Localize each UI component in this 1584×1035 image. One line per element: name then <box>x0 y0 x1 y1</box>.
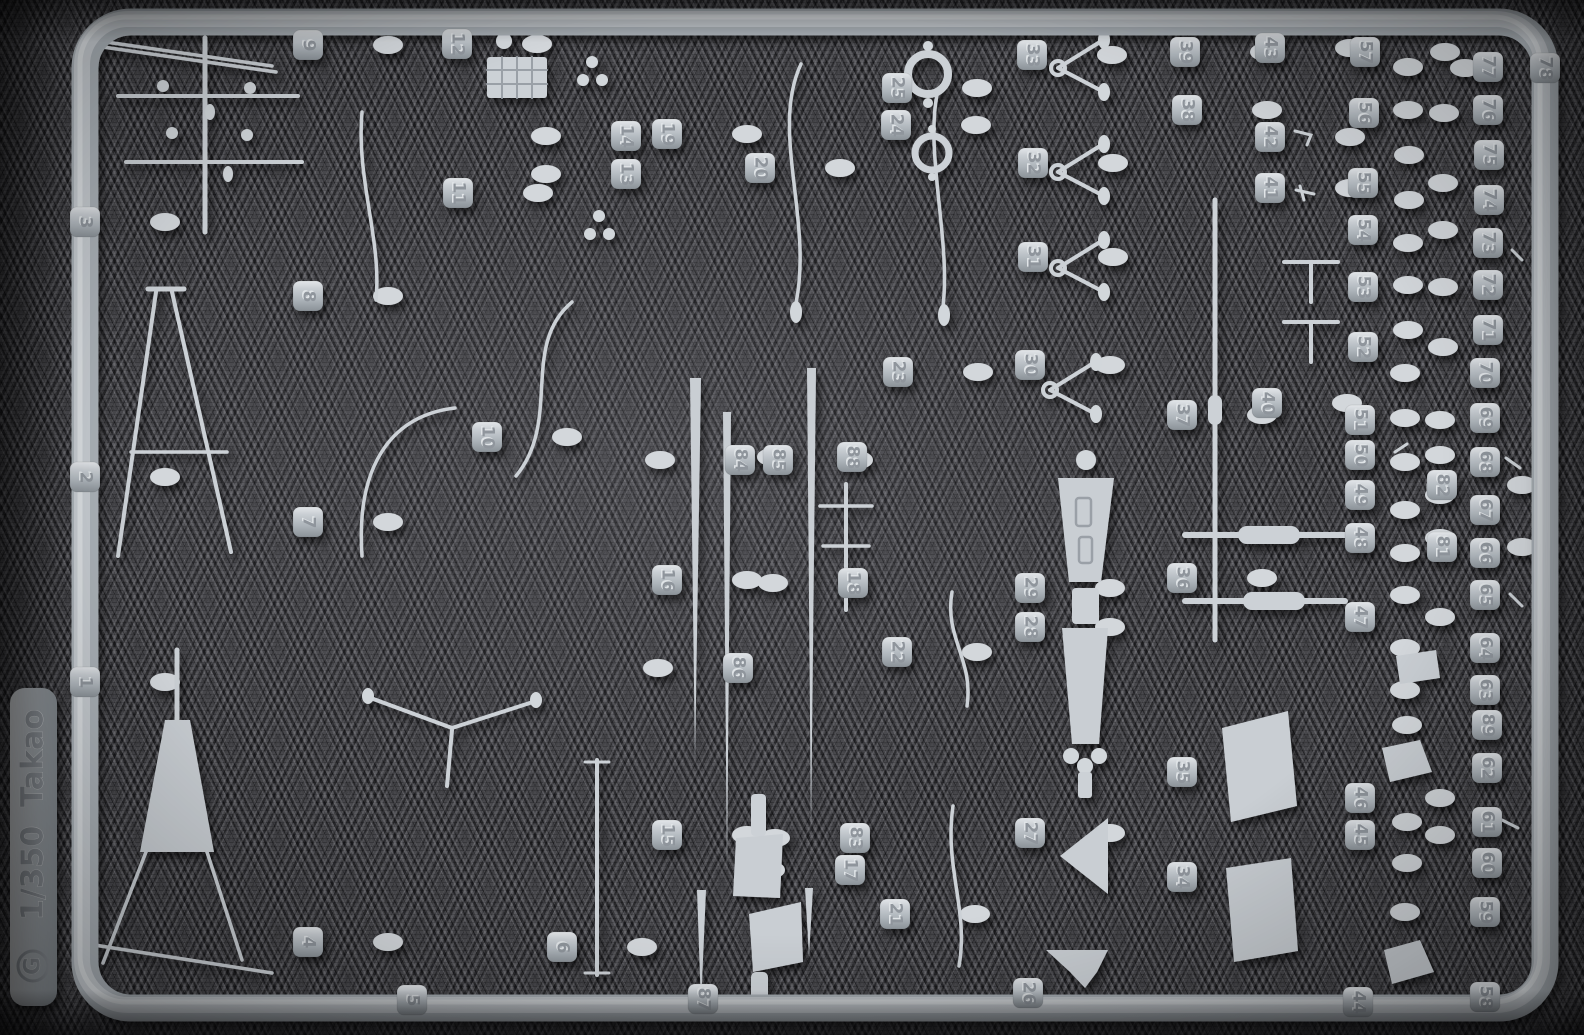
propeller <box>603 228 615 240</box>
funnel-neck <box>751 794 766 836</box>
part-number: 89 <box>1478 714 1498 738</box>
capsule-part <box>963 363 993 381</box>
part-number: 15 <box>658 824 678 848</box>
part-number-tab: 2323 <box>883 357 913 387</box>
part-number: 36 <box>1173 567 1193 591</box>
part-number: 78 <box>1536 57 1556 81</box>
signal-lamp <box>166 127 178 139</box>
part-number-tab: 8686 <box>723 653 753 683</box>
part-number: 52 <box>1354 336 1374 360</box>
part-number-tab: 8787 <box>688 984 718 1014</box>
crane-tower <box>1062 628 1108 744</box>
part-number: 72 <box>1479 274 1499 298</box>
capsule-part <box>1394 191 1424 209</box>
ring-knob <box>928 125 936 133</box>
funnel-box <box>749 902 803 972</box>
propeller <box>593 210 605 222</box>
part-number: 70 <box>1476 362 1496 386</box>
part-number-tab: 1212 <box>442 29 472 59</box>
part-number-tab: 3535 <box>1167 757 1197 787</box>
part-number-tab: 1818 <box>838 568 868 598</box>
whip-bulb <box>938 304 950 326</box>
part-number: 43 <box>1261 37 1281 61</box>
part-number-tab: 88 <box>293 281 323 311</box>
thin-rod <box>92 40 272 66</box>
part-number: 35 <box>1173 761 1193 785</box>
part-number: 6 <box>553 942 573 954</box>
part-number-tab: 4242 <box>1255 122 1285 152</box>
capsule-part <box>1428 338 1458 356</box>
part-number: 49 <box>1351 484 1371 508</box>
part-number: 71 <box>1479 319 1499 343</box>
part-number: 82 <box>1433 474 1453 498</box>
part-number: 84 <box>731 449 751 473</box>
propeller <box>596 74 608 86</box>
part-number: 55 <box>1354 172 1374 196</box>
capsule-part <box>552 428 582 446</box>
capsule-part <box>1393 58 1423 76</box>
crane-stem <box>1078 772 1092 798</box>
capsule-part <box>1390 586 1420 604</box>
funnel-box <box>733 834 783 898</box>
scale-text: 1/350 <box>16 826 51 920</box>
part-number-tab: 1717 <box>835 855 865 885</box>
part-number-tab: 7474 <box>1474 185 1504 215</box>
part-number: 66 <box>1476 542 1496 566</box>
hook-part <box>1506 458 1520 468</box>
part-number-tab: 8989 <box>1472 710 1502 740</box>
capsule-part <box>758 574 788 592</box>
part-number: 50 <box>1351 444 1371 468</box>
part-number-tab: 7171 <box>1473 315 1503 345</box>
part-number: 12 <box>448 33 468 57</box>
capsule-part <box>1390 409 1420 427</box>
part-number: 53 <box>1354 276 1374 300</box>
part-number-tab: 5656 <box>1349 98 1379 128</box>
part-number: 38 <box>1178 99 1198 123</box>
barrel-sleeve <box>1243 592 1305 610</box>
part-number-tab: 2828 <box>1015 612 1045 642</box>
barrel-sleeve <box>1238 526 1300 544</box>
part-number: 39 <box>1176 41 1196 65</box>
crane-foot <box>1077 758 1093 774</box>
part-number: 27 <box>1021 822 1041 846</box>
part-number-tab: 2020 <box>745 153 775 183</box>
t-part <box>1284 322 1338 362</box>
part-number-tab: 6363 <box>1470 675 1500 705</box>
part-number-tab: 3636 <box>1167 563 1197 593</box>
part-number-tab: 7070 <box>1470 358 1500 388</box>
part-number-tab: 3434 <box>1167 862 1197 892</box>
part-number-tab: 4949 <box>1345 480 1375 510</box>
capsule-part <box>373 513 403 531</box>
capsule-part <box>1392 716 1422 734</box>
part-number: 31 <box>1024 246 1044 270</box>
part-number: 73 <box>1479 232 1499 256</box>
part-number-tab: 5757 <box>1350 37 1380 67</box>
part-number: 2 <box>76 472 96 484</box>
sprue-graphic: G 1/350 Takao 33221199887744121211111010… <box>0 0 1584 1035</box>
part-number: 17 <box>841 859 861 883</box>
part-number: 10 <box>478 426 498 450</box>
part-number: 46 <box>1351 787 1371 811</box>
capsule-part <box>1392 813 1422 831</box>
capsule-part <box>1390 681 1420 699</box>
davit-bob <box>1098 187 1110 205</box>
part-number: 7 <box>299 517 319 529</box>
part-number: 85 <box>769 449 789 473</box>
capsule-part <box>1393 276 1423 294</box>
propeller <box>586 56 598 68</box>
part-number-tab: 7575 <box>1474 140 1504 170</box>
part-number-tab: 4747 <box>1345 602 1375 632</box>
part-number-tab: 4040 <box>1252 388 1282 418</box>
part-number: 64 <box>1476 637 1496 661</box>
whip-bulb <box>790 301 802 323</box>
part-number: 60 <box>1478 852 1498 876</box>
capsule-part <box>1393 101 1423 119</box>
part-number-tab: 1111 <box>443 178 473 208</box>
capsule-part <box>1392 854 1422 872</box>
part-number-tab: 6767 <box>1470 495 1500 525</box>
part-number: 34 <box>1173 866 1193 890</box>
part-number-tab: 8585 <box>763 445 793 475</box>
part-number: 65 <box>1476 584 1496 608</box>
capsule-part <box>627 938 657 956</box>
part-number: 13 <box>617 163 637 187</box>
part-number: 51 <box>1351 409 1371 433</box>
capsule-part <box>523 184 553 202</box>
part-number-tab: 6969 <box>1470 403 1500 433</box>
part-number: 23 <box>889 361 909 385</box>
part-number: 18 <box>844 572 864 596</box>
signal-lamp <box>241 129 253 141</box>
part-number-tab: 66 <box>547 932 577 962</box>
part-number-tab: 11 <box>70 667 100 697</box>
part-number: 8 <box>299 291 319 303</box>
part-number-tab: 6262 <box>1472 753 1502 783</box>
part-number-tab: 33 <box>70 207 100 237</box>
part-number: 62 <box>1478 757 1498 781</box>
part-number: 56 <box>1355 102 1375 126</box>
crane-foot <box>1091 748 1107 764</box>
part-number-tab: 6666 <box>1470 538 1500 568</box>
ring-knob <box>923 41 933 51</box>
aframe-leg <box>118 292 156 556</box>
pylon-plate <box>140 720 214 852</box>
part-number: 54 <box>1354 219 1374 243</box>
part-number-tab: 2424 <box>881 110 911 140</box>
ring-knob <box>928 173 936 181</box>
part-number-tab: 5555 <box>1348 168 1378 198</box>
part-number-tab: 3737 <box>1167 400 1197 430</box>
mast-spike <box>690 378 701 762</box>
part-number: 81 <box>1433 536 1453 560</box>
part-number-tab: 5858 <box>1470 982 1500 1012</box>
capsule-part <box>825 159 855 177</box>
part-number-tab: 99 <box>293 30 323 60</box>
part-number-tab: 6565 <box>1470 580 1500 610</box>
part-number-tab: 3333 <box>1017 40 1047 70</box>
capsule-part <box>1390 453 1420 471</box>
part-number-tab: 6868 <box>1470 447 1500 477</box>
part-number: 41 <box>1261 177 1281 201</box>
part-number: 19 <box>658 123 678 147</box>
part-number: 30 <box>1021 354 1041 378</box>
part-number-tab: 3131 <box>1018 242 1048 272</box>
part-number: 28 <box>1021 616 1041 640</box>
whip-antenna <box>951 806 961 966</box>
box-part <box>1396 650 1440 684</box>
part-number-tab: 7373 <box>1473 228 1503 258</box>
part-number: 24 <box>887 114 907 138</box>
part-number: 76 <box>1479 99 1499 123</box>
part-number: 69 <box>1476 407 1496 431</box>
part-number: 5 <box>403 995 423 1007</box>
part-number: 20 <box>751 157 771 181</box>
signal-lamp <box>244 82 256 94</box>
part-number: 67 <box>1476 499 1496 523</box>
part-number: 26 <box>1019 982 1039 1006</box>
part-number-tab: 8181 <box>1427 532 1457 562</box>
capsule-part <box>373 36 403 54</box>
part-number-tab: 3232 <box>1018 148 1048 178</box>
capsule-part <box>1390 501 1420 519</box>
part-number: 3 <box>76 217 96 229</box>
propeller <box>577 74 589 86</box>
part-number: 4 <box>299 937 319 949</box>
part-number-tab: 44 <box>293 927 323 957</box>
crane-foot <box>1063 748 1079 764</box>
part-number: 86 <box>729 657 749 681</box>
spreader-bulb <box>530 692 542 708</box>
part-number-tab: 5252 <box>1348 332 1378 362</box>
capsule-part <box>1390 364 1420 382</box>
part-number-tab: 5353 <box>1348 272 1378 302</box>
part-number-tab: 2626 <box>1013 978 1043 1008</box>
box-part <box>1382 740 1432 782</box>
part-number-tab: 4646 <box>1345 783 1375 813</box>
capsule-part <box>150 213 180 231</box>
capsule-part <box>961 116 991 134</box>
part-number-tab: 1616 <box>652 565 682 595</box>
thin-rod <box>88 944 272 973</box>
capsule-part <box>522 35 552 53</box>
part-number: 75 <box>1480 144 1500 168</box>
part-number-tab: 5454 <box>1348 215 1378 245</box>
capsule-part <box>1430 43 1460 61</box>
part-number-tab: 2929 <box>1015 573 1045 603</box>
part-number: 48 <box>1351 527 1371 551</box>
part-number: 87 <box>694 988 714 1012</box>
part-number-tab: 7777 <box>1473 52 1503 82</box>
sprue: G 1/350 Takao 33221199887744121211111010… <box>10 17 1560 1018</box>
part-number: 25 <box>888 77 908 101</box>
capsule-part <box>531 127 561 145</box>
capsule-part <box>1393 234 1423 252</box>
part-number: 14 <box>617 125 637 149</box>
capsule-part <box>1394 146 1424 164</box>
bracket-part <box>1046 950 1108 988</box>
funnel-cap-knob <box>1076 450 1096 470</box>
gate-letter: G <box>21 957 46 975</box>
propeller <box>584 228 596 240</box>
lamp-drop <box>205 104 215 120</box>
part-number: 57 <box>1356 41 1376 65</box>
t-part <box>1284 262 1338 302</box>
part-number: 45 <box>1351 824 1371 848</box>
capsule-part <box>962 79 992 97</box>
capsule-part <box>1097 46 1127 64</box>
part-number-tab: 1919 <box>652 119 682 149</box>
part-number-tab: 2222 <box>882 637 912 667</box>
part-number: 74 <box>1480 189 1500 213</box>
part-number-tab: 8282 <box>1427 470 1457 500</box>
part-number-tab: 8383 <box>840 823 870 853</box>
platform-plate <box>1222 711 1297 822</box>
aframe-leg <box>172 292 231 552</box>
part-number: 61 <box>1478 811 1498 835</box>
davit-bob <box>1098 283 1110 301</box>
capsule-part <box>1252 101 1282 119</box>
part-number-tab: 8888 <box>837 442 867 472</box>
part-number-tab: 4444 <box>1343 987 1373 1017</box>
whip-antenna <box>789 64 801 303</box>
capsule-part <box>1098 248 1128 266</box>
funnel-cap <box>1058 478 1114 582</box>
davit-bob <box>1090 353 1102 371</box>
part-number: 77 <box>1479 56 1499 80</box>
part-number-tab: 7676 <box>1473 95 1503 125</box>
part-number: 1 <box>76 677 96 689</box>
box-part <box>1384 940 1434 984</box>
part-number: 42 <box>1261 126 1281 150</box>
capsule-part <box>373 933 403 951</box>
part-number-tab: 7878 <box>1530 53 1560 83</box>
capsule-part <box>1425 789 1455 807</box>
capsule-part <box>1335 128 1365 146</box>
part-number: 33 <box>1023 44 1043 68</box>
sprue-id-tab: G 1/350 Takao <box>10 688 57 1006</box>
capsule-part <box>1393 321 1423 339</box>
mast-spike <box>805 888 813 956</box>
davit-bob <box>1090 405 1102 423</box>
part-number-tab: 7272 <box>1473 270 1503 300</box>
ring-part <box>915 136 949 170</box>
whip-antenna <box>361 408 455 556</box>
sprue-photo: G 1/350 Takao 33221199887744121211111010… <box>0 0 1584 1035</box>
part-number-tab: 2727 <box>1015 818 1045 848</box>
signal-lamp <box>157 80 169 92</box>
capsule-part <box>732 125 762 143</box>
rod-collar <box>1208 395 1222 425</box>
lamp-drop <box>223 166 233 182</box>
capsule-part <box>732 571 762 589</box>
part-number: 47 <box>1351 606 1371 630</box>
part-number: 11 <box>449 182 469 206</box>
part-number-tab: 1414 <box>611 121 641 151</box>
part-number: 63 <box>1476 679 1496 703</box>
part-number: 59 <box>1476 901 1496 925</box>
davit-bob <box>1098 231 1110 249</box>
part-number-tab: 1010 <box>472 422 502 452</box>
part-number-tab: 2525 <box>882 73 912 103</box>
capsule-part <box>1247 569 1277 587</box>
capsule-part <box>1425 608 1455 626</box>
part-number: 29 <box>1021 577 1041 601</box>
part-number-tab: 3939 <box>1170 37 1200 67</box>
part-number: 37 <box>1173 404 1193 428</box>
part-number-tab: 6464 <box>1470 633 1500 663</box>
part-number-tab: 5050 <box>1345 440 1375 470</box>
part-number-tab: 77 <box>293 507 323 537</box>
ring-knob <box>923 98 933 108</box>
capsule-part <box>531 165 561 183</box>
whip-antenna <box>516 302 572 476</box>
part-number-tab: 4545 <box>1345 820 1375 850</box>
spreader-bulb <box>362 688 374 704</box>
capsule-part <box>645 451 675 469</box>
part-number: 22 <box>888 641 908 665</box>
part-number: 21 <box>886 903 906 927</box>
part-number: 44 <box>1349 991 1369 1015</box>
part-number-tab: 5151 <box>1345 405 1375 435</box>
kit-name-text: Takao <box>16 709 51 807</box>
platform-plate <box>1226 858 1298 962</box>
capsule-part <box>643 659 673 677</box>
capsule-part <box>1390 903 1420 921</box>
capsule-part <box>962 643 992 661</box>
part-number: 16 <box>658 569 678 593</box>
capsule-part <box>1098 154 1128 172</box>
capsule-part <box>1428 174 1458 192</box>
hook-part <box>1502 820 1518 828</box>
pylon-leg <box>207 852 242 960</box>
part-number-tab: 55 <box>397 985 427 1015</box>
part-number-tab: 22 <box>70 462 100 492</box>
part-number-tab: 6060 <box>1472 848 1502 878</box>
part-number-tab: 4343 <box>1255 33 1285 63</box>
part-number: 68 <box>1476 451 1496 475</box>
davit-bob <box>1098 135 1110 153</box>
part-number: 58 <box>1476 986 1496 1010</box>
yardarm-diagonal <box>96 46 276 72</box>
part-number: 32 <box>1024 152 1044 176</box>
part-number: 83 <box>846 827 866 851</box>
whip-antenna <box>361 112 377 300</box>
part-number: 88 <box>843 446 863 470</box>
hook-part <box>1510 594 1522 606</box>
part-number-tab: 5959 <box>1470 897 1500 927</box>
part-number: 9 <box>299 40 319 52</box>
capsule-part <box>150 468 180 486</box>
part-number-tab: 1515 <box>652 820 682 850</box>
crane-base <box>1072 588 1099 624</box>
part-number-tab: 8484 <box>725 445 755 475</box>
part-number-tab: 1313 <box>611 159 641 189</box>
part-number: 40 <box>1258 392 1278 416</box>
hook-part <box>1512 250 1522 260</box>
part-number-tab: 4848 <box>1345 523 1375 553</box>
capsule-part <box>1390 544 1420 562</box>
davit-bob <box>1098 83 1110 101</box>
part-number-tab: 2121 <box>880 899 910 929</box>
part-number-tab: 3838 <box>1172 95 1202 125</box>
capsule-part <box>960 905 990 923</box>
part-number-tab: 4141 <box>1255 173 1285 203</box>
part-number-tab: 3030 <box>1015 350 1045 380</box>
part-number-tab: 6161 <box>1472 807 1502 837</box>
